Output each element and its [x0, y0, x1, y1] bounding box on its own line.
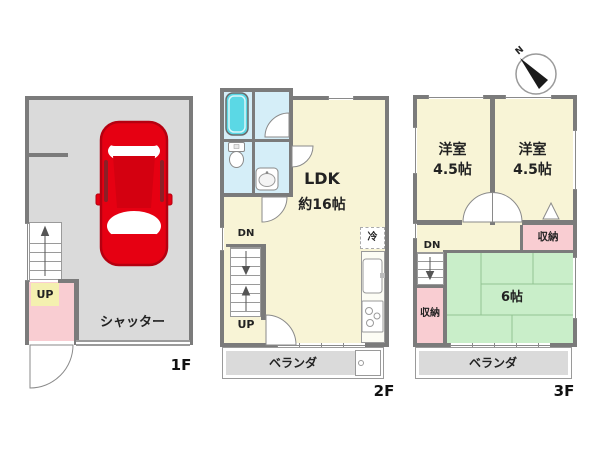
3f-bedroom-right-size: 4.5帖: [504, 161, 561, 178]
3f-balcony-label: ベランダ: [438, 355, 548, 371]
3f-wall-h-left: [417, 220, 462, 225]
3f-dn-label: DN: [420, 240, 444, 252]
1f-wall-stub: [25, 153, 68, 157]
compass-icon: [516, 54, 556, 94]
3f-bedroom-divider: [490, 99, 495, 225]
3f-floor-label: 3F: [550, 383, 578, 399]
2f-kitchen-counter: [361, 251, 385, 343]
3f-window-top-left: [428, 95, 484, 99]
1f-staircase: [29, 222, 62, 283]
1f-door-opening: [29, 341, 74, 345]
1f-entrance-door-arc: [30, 345, 73, 388]
2f-ldk-name: LDK: [282, 170, 362, 188]
3f-bedroom-left-size: 4.5帖: [424, 161, 481, 178]
2f-fridge-label: 冷: [360, 227, 385, 249]
2f-washer-drain: [358, 360, 364, 366]
2f-up-label: UP: [232, 317, 260, 331]
1f-shutter-line: [76, 340, 190, 346]
2f-stair-wall-right: [261, 244, 266, 320]
3f-bedroom-right-name: 洋室: [505, 141, 560, 158]
2f-floor-label: 2F: [370, 383, 398, 399]
2f-window-left: [220, 227, 224, 251]
1f-entrance-wall-right: [74, 279, 79, 345]
3f-staircase: [417, 252, 444, 285]
compass-north-label: N: [511, 43, 528, 60]
1f-floor-label: 1F: [168, 357, 194, 373]
3f-window-top-right: [505, 95, 552, 99]
2f-dn-label: DN: [232, 227, 260, 240]
3f-bedroom-left-name: 洋室: [425, 141, 480, 158]
3f-window-right-tatami: [573, 257, 577, 319]
2f-bath-wall-h: [224, 139, 289, 142]
3f-window-left-bedroom: [413, 127, 417, 174]
1f-up-label: UP: [31, 283, 59, 306]
3f-closet-upper-label: 収納: [523, 229, 573, 245]
2f-bath-wall-v: [252, 92, 255, 193]
2f-balcony-label: ベランダ: [238, 355, 348, 371]
3f-tatami-label: 6帖: [487, 289, 537, 306]
floor-plan: UP シャッター 1F DN UP 冷 LDK 約16帖 ベランダ: [0, 0, 600, 450]
1f-garage-label: シャッター: [90, 314, 175, 330]
2f-ldk-size: 約16帖: [278, 196, 366, 213]
3f-closet-lower-label: 収納: [415, 306, 445, 321]
3f-window-left-hall: [413, 223, 417, 239]
2f-staircase: [230, 247, 261, 317]
3f-window-right-bedroom: [573, 130, 577, 190]
2f-window-top: [328, 96, 354, 100]
